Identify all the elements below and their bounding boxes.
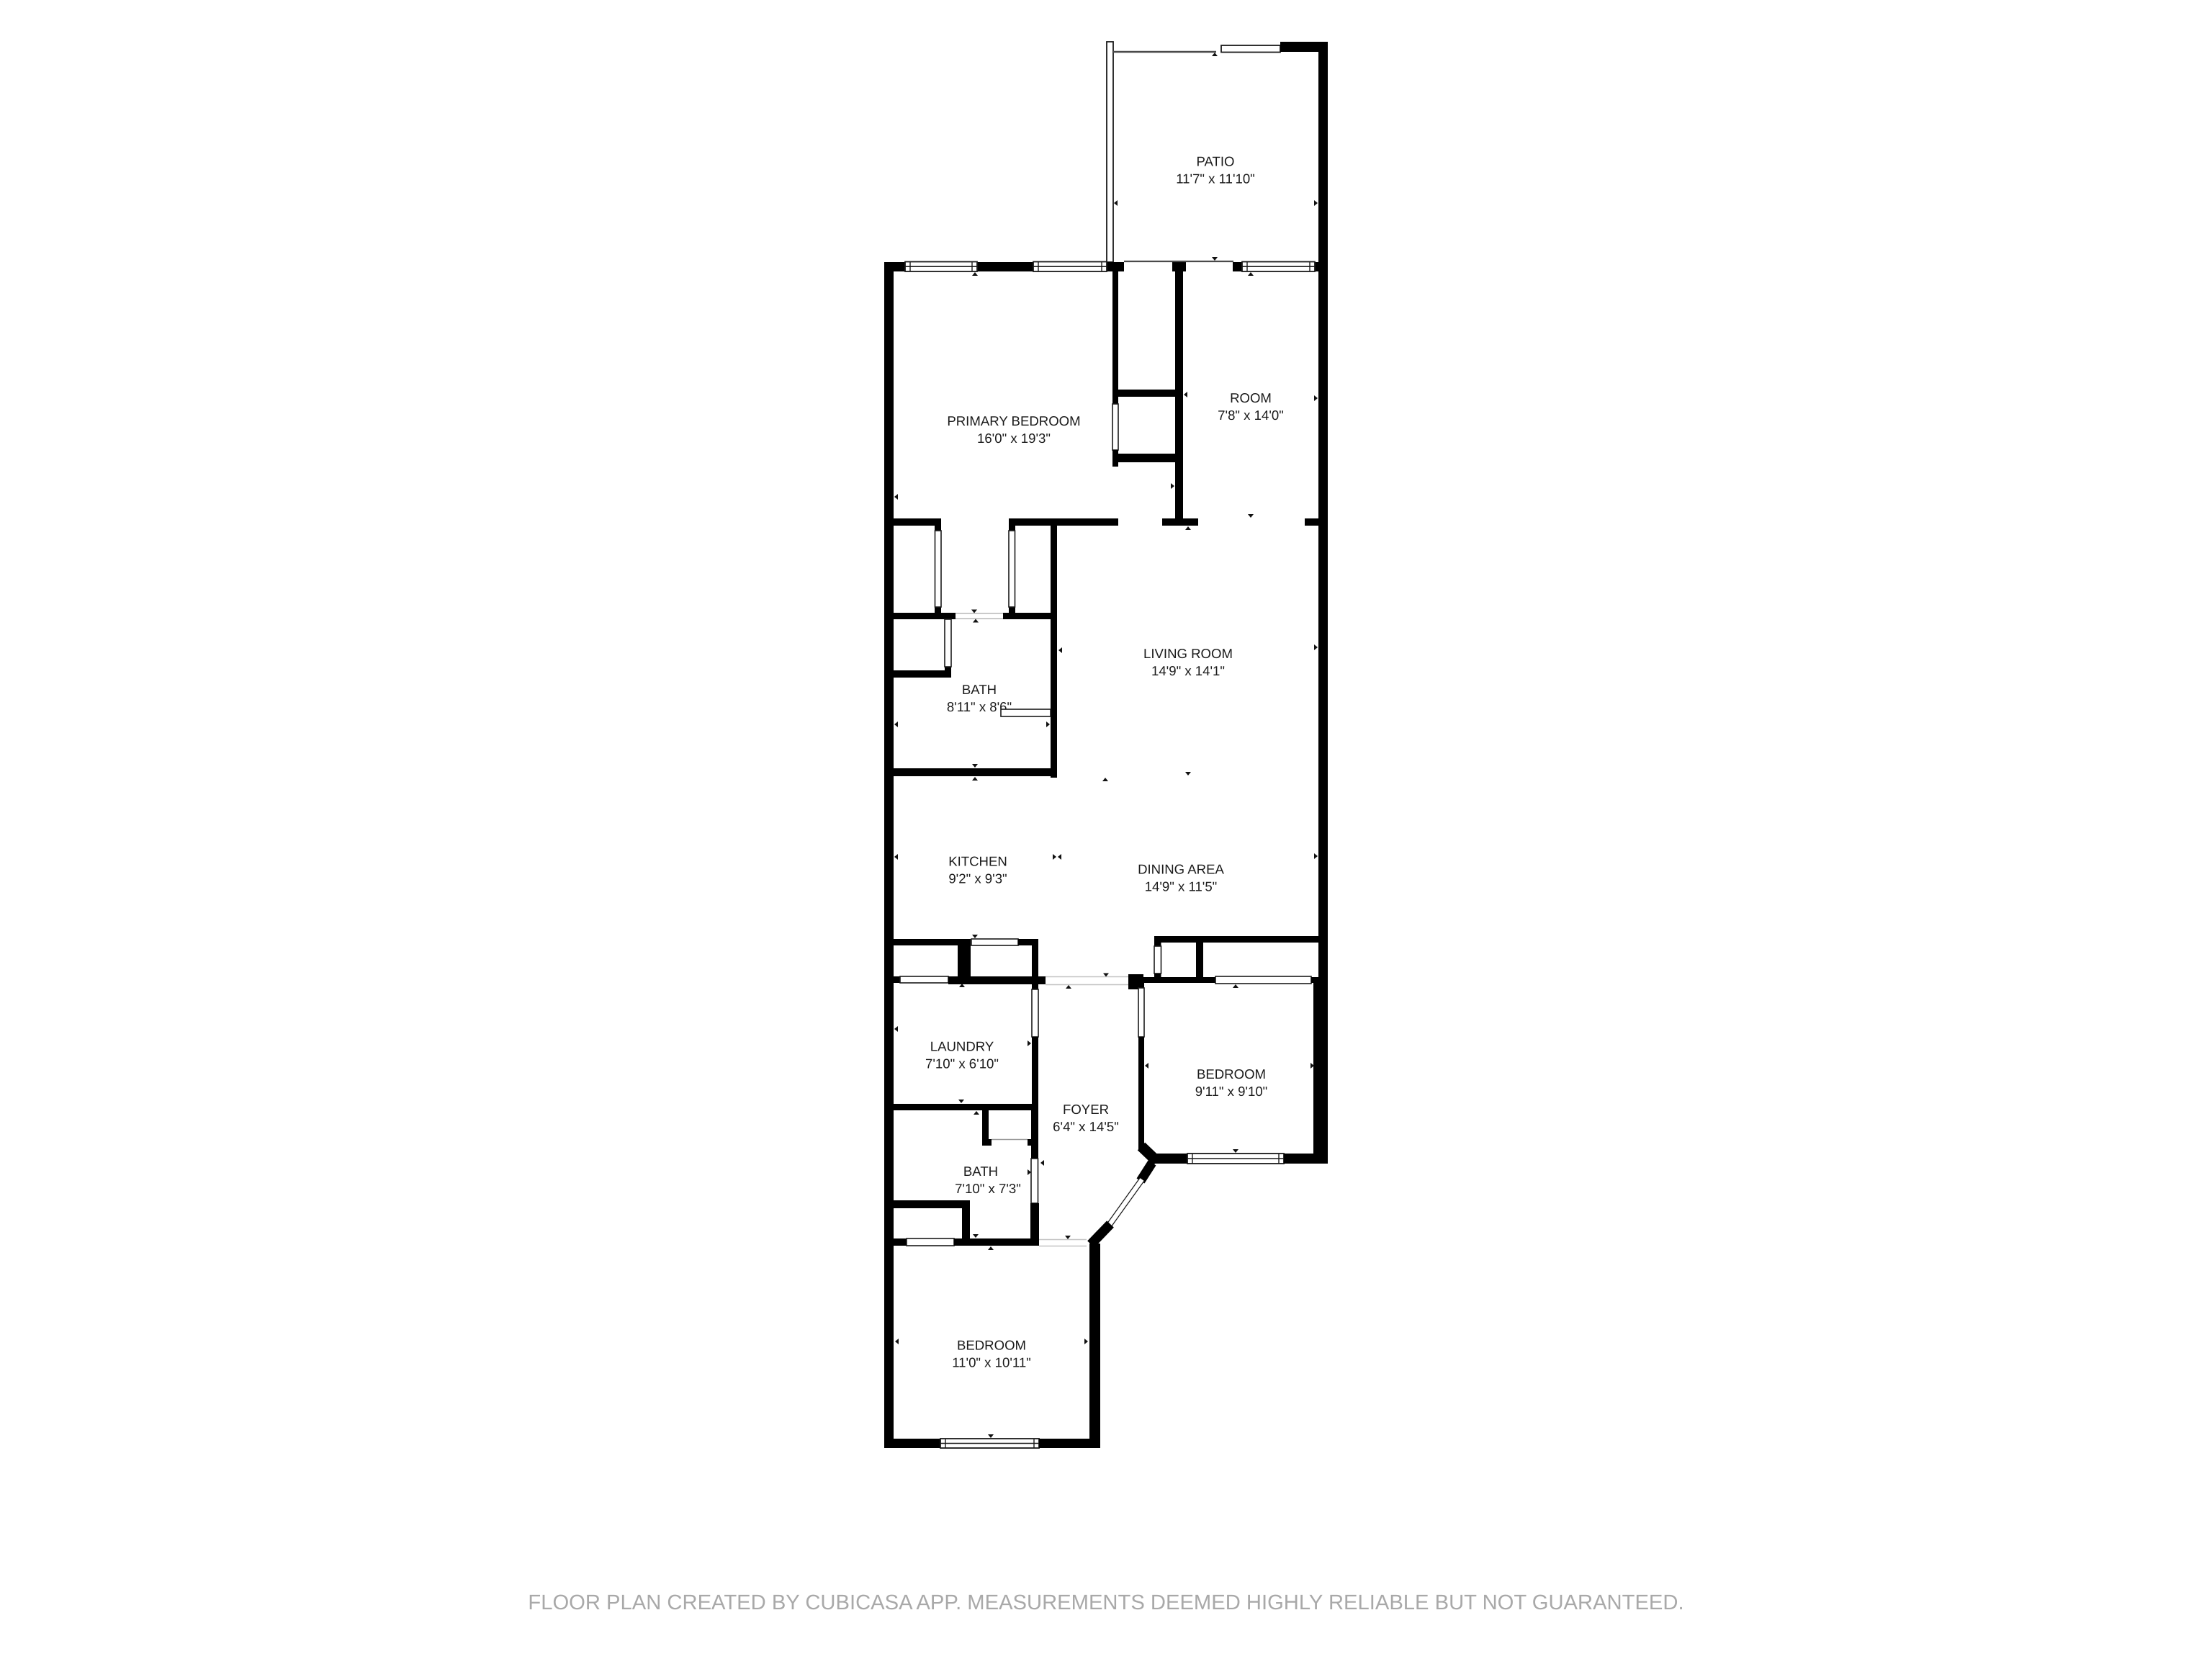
- svg-text:FLOOR PLAN CREATED BY CUBICASA: FLOOR PLAN CREATED BY CUBICASA APP. MEAS…: [528, 1591, 1683, 1614]
- svg-text:11'7" x 11'10": 11'7" x 11'10": [1176, 171, 1255, 186]
- svg-text:DINING AREA: DINING AREA: [1138, 862, 1224, 877]
- svg-text:KITCHEN: KITCHEN: [948, 854, 1007, 869]
- svg-text:BATH: BATH: [962, 682, 997, 697]
- svg-text:BATH: BATH: [963, 1164, 998, 1179]
- svg-text:14'9" x 11'5": 14'9" x 11'5": [1145, 879, 1218, 894]
- svg-text:9'11" x 9'10": 9'11" x 9'10": [1195, 1084, 1268, 1099]
- svg-text:6'4" x 14'5": 6'4" x 14'5": [1053, 1119, 1119, 1134]
- svg-text:BEDROOM: BEDROOM: [957, 1338, 1026, 1353]
- svg-text:11'0" x 10'11": 11'0" x 10'11": [952, 1355, 1031, 1370]
- svg-text:PRIMARY BEDROOM: PRIMARY BEDROOM: [947, 413, 1080, 428]
- svg-text:FOYER: FOYER: [1063, 1102, 1109, 1117]
- svg-text:7'10" x 7'3": 7'10" x 7'3": [955, 1181, 1021, 1196]
- svg-text:16'0" x 19'3": 16'0" x 19'3": [977, 431, 1051, 446]
- svg-text:9'2" x 9'3": 9'2" x 9'3": [948, 871, 1007, 886]
- svg-text:7'10" x 6'10": 7'10" x 6'10": [925, 1056, 999, 1071]
- svg-text:LIVING ROOM: LIVING ROOM: [1143, 646, 1233, 661]
- svg-text:PATIO: PATIO: [1196, 154, 1234, 169]
- svg-text:14'9" x 14'1": 14'9" x 14'1": [1151, 663, 1225, 678]
- svg-text:BEDROOM: BEDROOM: [1197, 1066, 1266, 1082]
- svg-text:ROOM: ROOM: [1230, 390, 1272, 405]
- svg-text:LAUNDRY: LAUNDRY: [930, 1039, 994, 1054]
- svg-text:7'8" x 14'0": 7'8" x 14'0": [1218, 408, 1284, 423]
